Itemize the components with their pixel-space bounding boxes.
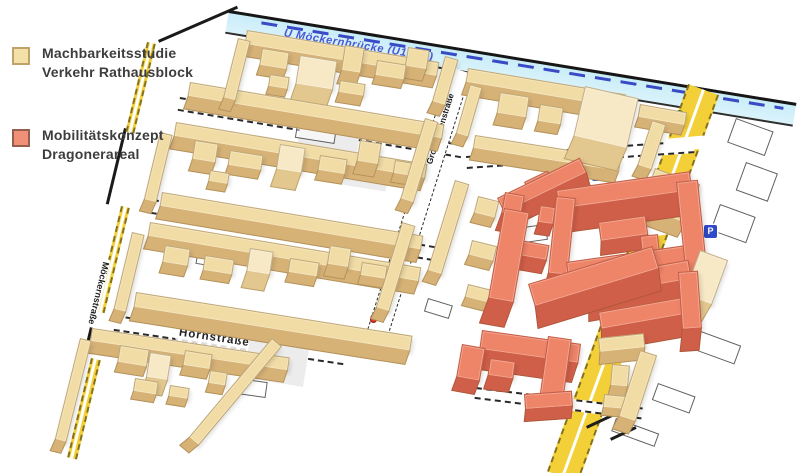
building-rathausblock <box>573 86 638 149</box>
legend-line: Dragonerareal <box>42 146 140 162</box>
building-rathausblock <box>317 155 347 175</box>
building-footprint <box>727 118 773 156</box>
building-rathausblock <box>360 262 388 280</box>
building-rathausblock <box>259 48 289 70</box>
building-rathausblock <box>537 104 564 126</box>
building-rathausblock <box>182 350 212 370</box>
legend-line: Machbarkeitsstudie <box>42 45 176 61</box>
building-dragonerareal <box>678 271 702 330</box>
parking-icon: P <box>704 225 717 238</box>
building-rathausblock <box>202 255 234 275</box>
figure-3d-map: Machbarkeitsstudie Verkehr Rathausblock … <box>0 0 800 473</box>
building-rathausblock <box>468 240 497 262</box>
building-rathausblock <box>168 385 190 400</box>
building-rathausblock <box>192 140 219 164</box>
building-footprint <box>652 383 696 414</box>
legend-label-rathausblock: Machbarkeitsstudie Verkehr Rathausblock <box>42 44 193 82</box>
legend-swatch-beige <box>12 47 30 65</box>
building-footprint <box>424 298 453 319</box>
building-rathausblock <box>374 60 406 80</box>
building-rathausblock <box>405 47 430 70</box>
building-rathausblock <box>162 245 190 267</box>
legend-line: Mobilitätskonzept <box>42 127 164 143</box>
building-rathausblock <box>474 196 500 219</box>
building-dragonerareal <box>487 358 515 379</box>
building-dragonerareal <box>524 391 573 410</box>
legend-line: Verkehr Rathausblock <box>42 64 193 80</box>
building-rathausblock <box>497 92 530 118</box>
building-rathausblock <box>117 345 149 367</box>
building-rathausblock <box>427 180 469 275</box>
building-rathausblock <box>146 352 172 381</box>
building-rathausblock <box>357 140 382 165</box>
building-rathausblock <box>610 364 630 387</box>
building-rathausblock <box>133 378 159 396</box>
building-rathausblock <box>338 80 366 97</box>
building-rathausblock <box>341 45 365 74</box>
building-rathausblock <box>268 74 290 90</box>
building-rathausblock <box>246 248 273 275</box>
legend-label-dragonerareal: Mobilitätskonzept Dragonerareal <box>42 126 164 164</box>
legend: Machbarkeitsstudie Verkehr Rathausblock … <box>12 44 193 164</box>
building-rathausblock <box>208 370 228 387</box>
building-rathausblock <box>208 170 230 185</box>
building-footprint <box>736 162 778 202</box>
legend-item-rathausblock: Machbarkeitsstudie Verkehr Rathausblock <box>12 44 193 82</box>
building-footprint <box>710 204 755 243</box>
building-rathausblock <box>327 245 352 268</box>
building-dragonerareal <box>456 344 486 382</box>
legend-swatch-salmon <box>12 129 30 147</box>
legend-item-dragonerareal: Mobilitätskonzept Dragonerareal <box>12 126 193 164</box>
building-rathausblock <box>276 144 306 174</box>
building-rathausblock <box>295 55 337 91</box>
